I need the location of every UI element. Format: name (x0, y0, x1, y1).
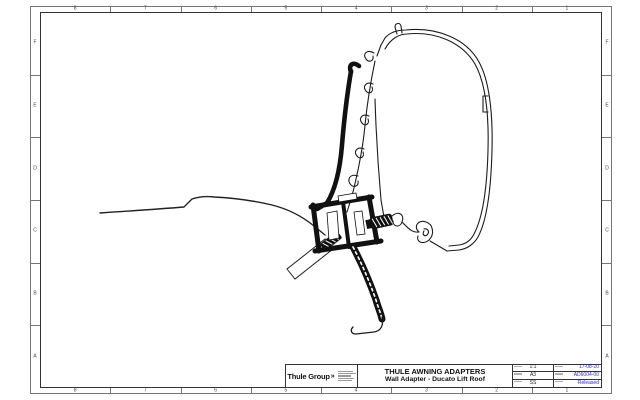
grid-tick (602, 137, 612, 138)
grid-tick (251, 6, 252, 12)
drawing-title-line2: Wall Adapter - Ducato Lift Roof (385, 376, 485, 384)
grid-tick (602, 200, 612, 201)
grid-label: A (605, 354, 608, 359)
drawing-sheet: Thule Group» THULE AWNING ADAPTERS Wall … (0, 0, 640, 400)
grid-label: 1 (565, 389, 568, 394)
grid-label: F (33, 41, 36, 46)
grid-tick (462, 388, 463, 394)
grid-label: 1 (565, 7, 568, 12)
grid-label: F (605, 41, 608, 46)
initials-value: SS (530, 381, 537, 386)
rail-clip-details (392, 213, 447, 251)
grid-tick (251, 388, 252, 394)
grid-tick (30, 137, 40, 138)
adapter-profile (317, 64, 359, 209)
format-value: A3 (530, 373, 536, 378)
status-value: Released (578, 381, 599, 386)
grid-label: 3 (425, 7, 428, 12)
grid-tick (532, 6, 533, 12)
grid-label: 8 (74, 7, 77, 12)
initials-field: SS (513, 380, 553, 387)
grid-label: C (33, 229, 37, 234)
grid-tick (30, 263, 40, 264)
awning-case-profile (347, 23, 492, 251)
grid-tick (30, 325, 40, 326)
van-roof-profile (100, 197, 325, 235)
grid-label: B (605, 292, 608, 297)
grid-tick (602, 75, 612, 76)
grid-label: B (33, 292, 36, 297)
grid-label: 2 (495, 7, 498, 12)
grid-label: E (605, 104, 608, 109)
scale-value: 1:1 (530, 365, 537, 370)
grid-tick (110, 388, 111, 394)
grid-tick (462, 6, 463, 12)
grid-label: 2 (495, 389, 498, 394)
grid-label: 4 (355, 389, 358, 394)
grid-tick (181, 388, 182, 394)
grid-tick (110, 6, 111, 12)
grid-label: 5 (284, 7, 287, 12)
document-number-value: AD6004-00 (574, 373, 599, 378)
grid-tick (30, 200, 40, 201)
grid-label: 3 (425, 389, 428, 394)
drawing-title: THULE AWNING ADAPTERS Wall Adapter - Duc… (358, 365, 513, 387)
format-field: A3 (513, 372, 553, 379)
grid-label: 6 (214, 7, 217, 12)
grid-label: E (33, 104, 36, 109)
adapter-lower-arm (351, 247, 382, 334)
drawing-title-line1: THULE AWNING ADAPTERS (385, 367, 486, 376)
grid-label: 7 (144, 389, 147, 394)
technical-drawing (0, 0, 640, 400)
grid-tick (391, 388, 392, 394)
date-value: 17-08-20 (579, 365, 599, 370)
grid-label: 6 (214, 389, 217, 394)
grid-tick (321, 388, 322, 394)
title-block: Thule Group» THULE AWNING ADAPTERS Wall … (285, 364, 602, 388)
grid-tick (30, 75, 40, 76)
grid-label: 7 (144, 7, 147, 12)
grid-tick (181, 6, 182, 12)
grid-label: C (605, 229, 609, 234)
title-block-meta: 1:1 17-08-20 A3 AD6004-00 SS Released (513, 365, 601, 387)
grid-tick (602, 325, 612, 326)
company-logo-text: Thule Group (287, 372, 329, 381)
grid-tick (532, 388, 533, 394)
status-field: Released (553, 380, 601, 387)
grid-label: D (33, 166, 37, 171)
fastener-screw-upper (365, 213, 394, 230)
company-logo-chevron: » (331, 373, 335, 380)
grid-tick (321, 6, 322, 12)
document-number-field: AD6004-00 (553, 372, 601, 379)
grid-label: D (605, 166, 609, 171)
grid-label: A (33, 354, 36, 359)
grid-label: 8 (74, 389, 77, 394)
grid-tick (602, 263, 612, 264)
company-logo: Thule Group» (286, 365, 358, 387)
grid-label: 4 (355, 7, 358, 12)
company-address-smudge (338, 371, 356, 381)
grid-label: 5 (284, 389, 287, 394)
grid-tick (391, 6, 392, 12)
